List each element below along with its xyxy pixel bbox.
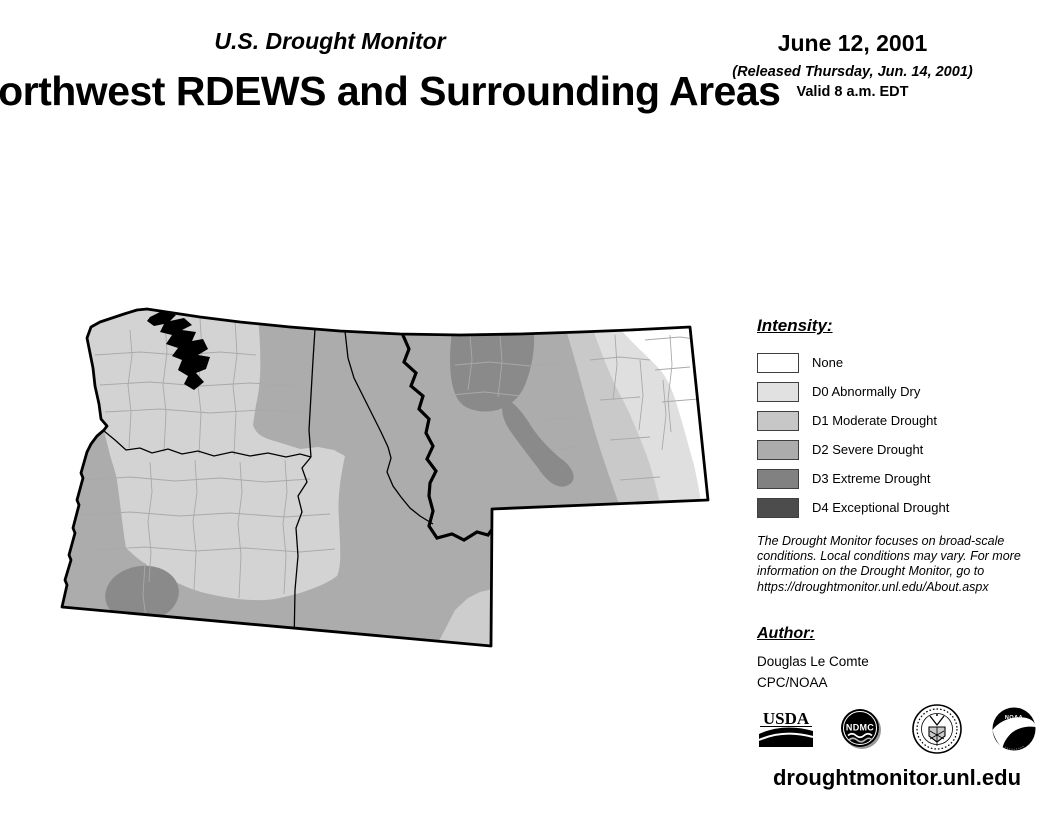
legend-heading: Intensity:: [757, 316, 1047, 336]
legend-label: D2 Severe Drought: [812, 442, 923, 457]
author-block: Author: Douglas Le Comte CPC/NOAA: [757, 625, 1047, 690]
legend-label: D4 Exceptional Drought: [812, 500, 949, 515]
legend-swatch-d1: [757, 411, 799, 431]
disclaimer-line: conditions. Local conditions may vary. F…: [757, 549, 1056, 564]
ndmc-logo-text: NDMC: [846, 723, 874, 733]
legend-label: None: [812, 355, 843, 370]
legend-item-d3: D3 Extreme Drought: [757, 464, 1047, 493]
legend-label: D0 Abnormally Dry: [812, 384, 920, 399]
usda-logo-text: USDA: [763, 709, 810, 728]
legend-label: D3 Extreme Drought: [812, 471, 931, 486]
disclaimer-line: https://droughtmonitor.unl.edu/About.asp…: [757, 580, 1056, 595]
report-kicker: U.S. Drought Monitor: [150, 28, 510, 55]
legend-swatch-d3: [757, 469, 799, 489]
commerce-seal-icon: [908, 703, 966, 755]
legend-item-d2: D2 Severe Drought: [757, 435, 1047, 464]
disclaimer-line: information on the Drought Monitor, go t…: [757, 564, 1056, 579]
legend-swatch-d0: [757, 382, 799, 402]
legend-swatch-d2: [757, 440, 799, 460]
footer-url: droughtmonitor.unl.edu: [757, 765, 1037, 791]
legend-item-d4: D4 Exceptional Drought: [757, 493, 1047, 522]
noaa-logo: NOAA: [991, 706, 1037, 752]
logo-row: USDA NDMC NOAA: [757, 703, 1037, 755]
disclaimer-line: The Drought Monitor focuses on broad-sca…: [757, 534, 1056, 549]
author-name: Douglas Le Comte: [757, 654, 1047, 669]
map-date: June 12, 2001: [695, 30, 1010, 57]
drought-map: [50, 288, 720, 660]
legend-swatch-none: [757, 353, 799, 373]
usda-logo: USDA: [757, 709, 815, 749]
legend-label: D1 Moderate Drought: [812, 413, 937, 428]
author-org: CPC/NOAA: [757, 675, 1047, 690]
page-title: Northwest RDEWS and Surrounding Areas: [0, 68, 780, 115]
ndmc-logo: NDMC: [840, 706, 882, 752]
intensity-legend: Intensity: None D0 Abnormally Dry D1 Mod…: [757, 316, 1047, 522]
disclaimer: The Drought Monitor focuses on broad-sca…: [757, 534, 1056, 595]
legend-item-d0: D0 Abnormally Dry: [757, 377, 1047, 406]
author-heading: Author:: [757, 625, 1047, 643]
legend-swatch-d4: [757, 498, 799, 518]
drought-monitor-report: U.S. Drought Monitor Northwest RDEWS and…: [0, 0, 1056, 816]
legend-item-none: None: [757, 348, 1047, 377]
legend-item-d1: D1 Moderate Drought: [757, 406, 1047, 435]
